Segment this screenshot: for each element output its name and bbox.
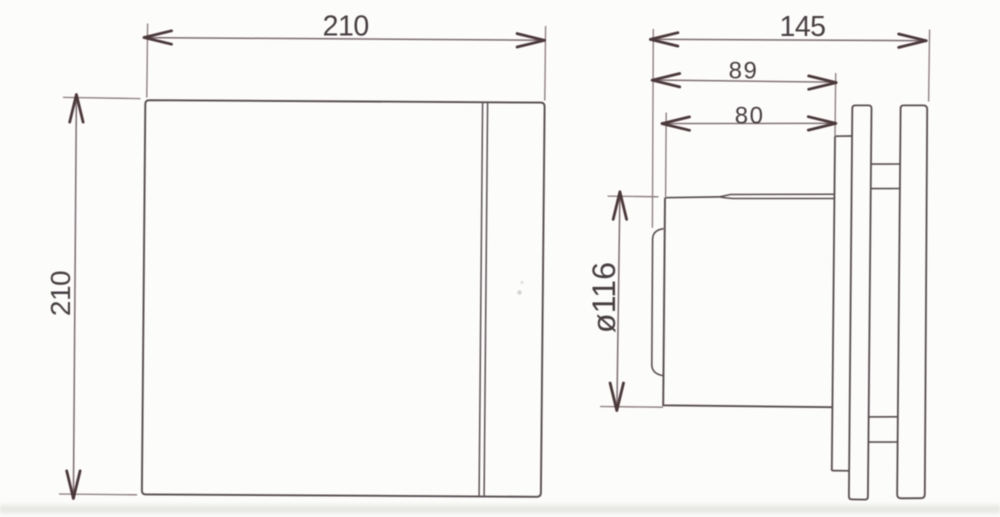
svg-text:210: 210 [45, 271, 76, 316]
svg-text:ø116: ø116 [586, 262, 622, 333]
svg-text:89: 89 [729, 58, 759, 85]
svg-text:145: 145 [779, 11, 825, 43]
svg-text:210: 210 [323, 11, 369, 43]
svg-text:80: 80 [735, 102, 765, 129]
